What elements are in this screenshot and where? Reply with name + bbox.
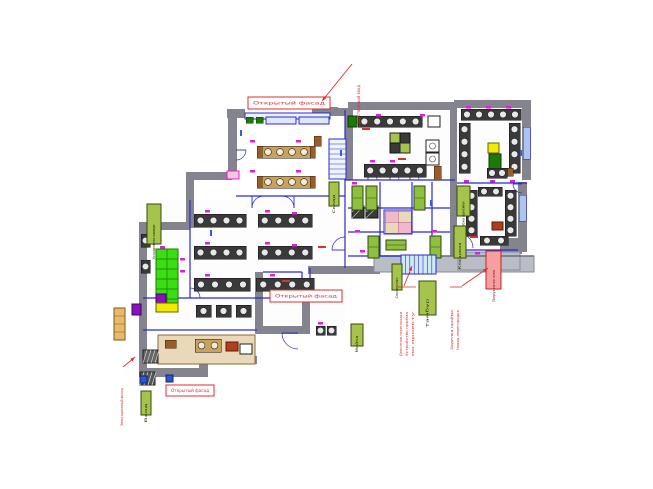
kitchen-stove (226, 342, 238, 351)
menu-board (266, 117, 296, 124)
purple-cell (156, 294, 166, 303)
exterior-wall (227, 109, 245, 118)
red-note-left: Эвакуационный выход (120, 387, 124, 426)
shelf-circle (223, 249, 230, 256)
shelf-circle (301, 149, 308, 156)
shelf-circle (289, 149, 296, 156)
dimension-mark (370, 160, 375, 163)
pink-note-label: Погрузочная зона (492, 270, 496, 302)
red-mark (398, 158, 406, 160)
shelf-circle (301, 179, 308, 186)
green-fixture (256, 117, 263, 123)
window-glazing (519, 195, 526, 221)
facade-middle-label: Открытый фасад (275, 293, 337, 300)
menu-board (299, 117, 329, 124)
facade-top-label: Открытый фасад (253, 100, 325, 107)
table-end (310, 146, 315, 158)
table-end (257, 146, 262, 158)
wood-shelf (434, 166, 441, 180)
red-mark (282, 280, 290, 282)
purple-box (132, 304, 141, 315)
shelf-circle (461, 151, 468, 158)
dimension-mark (270, 274, 275, 277)
shelf-circle (236, 217, 243, 224)
shelf-circle (328, 327, 335, 334)
sink-bowl (430, 143, 436, 149)
white-cabinet (428, 116, 440, 127)
exterior-wall (308, 266, 380, 274)
shelf-circle (484, 237, 491, 244)
dimension-mark (506, 106, 511, 109)
shelf-circle (412, 118, 419, 125)
gn-1-label: Холодильная камера (152, 224, 156, 259)
floor-plan-canvas: Открытый фасадОткрытый фасадОткрытый фас… (0, 0, 653, 489)
shelf-circle (198, 342, 205, 349)
shelf-circle (303, 281, 310, 288)
shelf-circle (512, 111, 519, 118)
shelf-circle (399, 118, 406, 125)
shelf-circle (507, 215, 514, 222)
security-gate (140, 376, 147, 383)
dimension-mark (292, 244, 297, 247)
gn-3-label: Кладовая (458, 242, 462, 269)
yellow-unit (488, 143, 499, 153)
shelf-circle (379, 167, 386, 174)
shelf-circle (392, 167, 399, 174)
shelf-circle (488, 111, 495, 118)
dimension-mark (160, 246, 165, 249)
shelf-circle (468, 227, 475, 234)
shelf-circle (197, 217, 204, 224)
island-cell (390, 143, 400, 153)
blue-mark (520, 150, 522, 156)
shelf-circle (240, 281, 247, 288)
pink-fixture (227, 171, 239, 179)
island-cell (390, 133, 400, 143)
shelf-circle (274, 281, 281, 288)
blue-mark (430, 200, 432, 206)
kitchen-cabinet (240, 344, 252, 354)
red-note-b1: Демонтаж перегородки (399, 312, 403, 356)
dimension-mark (265, 242, 270, 245)
exterior-wall (228, 118, 237, 178)
exterior-wall (348, 102, 456, 110)
red-note-b4: Заделка проёма (450, 310, 454, 350)
shelf-circle (302, 217, 309, 224)
shelf-circle (275, 217, 282, 224)
dimension-mark (510, 180, 515, 183)
shelf-circle (289, 281, 296, 288)
gn-7-label: Склад (332, 193, 336, 213)
red-note-b5: Новая перегородка (456, 310, 460, 350)
shelf-circle (489, 170, 496, 177)
dimension-mark (475, 252, 480, 255)
red-mark (470, 236, 478, 238)
wood-cabinet (314, 136, 321, 146)
red-mark (362, 128, 370, 130)
shelf-circle (367, 167, 374, 174)
dimension-mark (352, 182, 357, 185)
prep-cell (398, 211, 411, 222)
dimension-mark (265, 210, 270, 213)
shelf-circle (261, 249, 268, 256)
shelf-circle (275, 249, 282, 256)
shelf-circle (277, 179, 284, 186)
shelf-circle (288, 217, 295, 224)
island-cell (400, 133, 410, 143)
shelf-circle (464, 111, 471, 118)
dimension-mark (250, 170, 255, 173)
dimension-mark (490, 180, 495, 183)
stove-unit (492, 222, 503, 230)
shelf-circle (142, 263, 149, 270)
shelf-circle (374, 118, 381, 125)
shelf-circle (289, 179, 296, 186)
shelf-circle (197, 249, 204, 256)
shelf-circle (499, 170, 506, 177)
prep-cell (385, 211, 398, 222)
island-cell (400, 143, 410, 153)
shelf-circle (461, 163, 468, 170)
dimension-mark (296, 140, 301, 143)
shelf-circle (317, 327, 324, 334)
shelf-circle (511, 126, 518, 133)
floor-plan-page: Открытый фасадОткрытый фасадОткрытый фас… (0, 0, 653, 489)
shelf-circle (212, 281, 219, 288)
shelf-circle (265, 179, 272, 186)
red-note-b2: Устройство проёма (405, 312, 409, 356)
table-end (310, 176, 315, 188)
shelf-circle (260, 281, 267, 288)
dimension-mark (250, 140, 255, 143)
dimension-mark (464, 180, 469, 183)
shelf-circle (220, 308, 227, 315)
table-end (257, 176, 262, 188)
blue-mark (210, 230, 212, 236)
gn-8-label: Вход (144, 402, 148, 423)
shelf-circle (481, 188, 488, 195)
shelf-circle (507, 192, 514, 199)
yellow-cell (156, 303, 178, 312)
dimension-mark (205, 274, 210, 277)
prep-cell (385, 222, 398, 233)
dimension-mark (292, 212, 297, 215)
dimension-mark (318, 322, 323, 325)
shelf-circle (493, 188, 500, 195)
shelf-circle (277, 149, 284, 156)
red-note-top: Существующий вход (356, 85, 361, 127)
security-gate (166, 375, 173, 382)
dimension-mark (205, 210, 210, 213)
dimension-mark (486, 106, 491, 109)
prep-cell (398, 222, 411, 233)
shelf-circle (288, 249, 295, 256)
dimension-mark (466, 106, 471, 109)
dimension-mark (205, 242, 210, 245)
blue-mark (240, 130, 242, 136)
shelf-circle (361, 118, 368, 125)
dimension-mark (376, 114, 381, 117)
red-mark (318, 246, 326, 248)
shelf-circle (211, 342, 218, 349)
dimension-mark (180, 270, 185, 273)
dimension-mark (355, 230, 360, 233)
shelf-circle (226, 281, 233, 288)
shelf-circle (404, 167, 411, 174)
window-glazing (523, 127, 530, 159)
gn-5-label: Тамбур (426, 299, 430, 330)
shelf-circle (461, 126, 468, 133)
dimension-mark (390, 160, 395, 163)
dimension-mark (360, 250, 365, 253)
red-note-b3: по проекту (411, 312, 415, 356)
shelf-circle (265, 149, 272, 156)
shelf-circle (500, 111, 507, 118)
gn-2-label: Зона приёмки (462, 202, 466, 227)
kitchen-item (165, 340, 176, 348)
green-fixture (246, 117, 253, 123)
shelf-circle (507, 227, 514, 234)
shelf-circle (511, 138, 518, 145)
dimension-mark (296, 170, 301, 173)
shelf-circle (240, 308, 247, 315)
shelf-circle (223, 217, 230, 224)
exterior-wall (255, 326, 307, 334)
shelf-circle (476, 111, 483, 118)
shelf-circle (416, 167, 423, 174)
gn-6-label: Мойка (355, 335, 359, 352)
shelf-circle (302, 249, 309, 256)
gn-4-label: Серверная (395, 277, 399, 298)
sink-bowl (430, 156, 436, 162)
dimension-mark (432, 230, 437, 233)
shelf-circle (261, 217, 268, 224)
shelf-circle (210, 217, 217, 224)
shelf-circle (200, 308, 207, 315)
dimension-mark (420, 114, 425, 117)
facade-bottom-label: Открытый фасад (171, 387, 209, 394)
shelf-circle (498, 237, 505, 244)
shelf-circle (387, 118, 394, 125)
shelf-circle (210, 249, 217, 256)
shelf-circle (198, 281, 205, 288)
shelf-circle (236, 249, 243, 256)
dimension-mark (180, 258, 185, 261)
shelf-circle (507, 204, 514, 211)
shelf-circle (461, 138, 468, 145)
blue-mark (340, 150, 342, 156)
shelf-circle (511, 151, 518, 158)
